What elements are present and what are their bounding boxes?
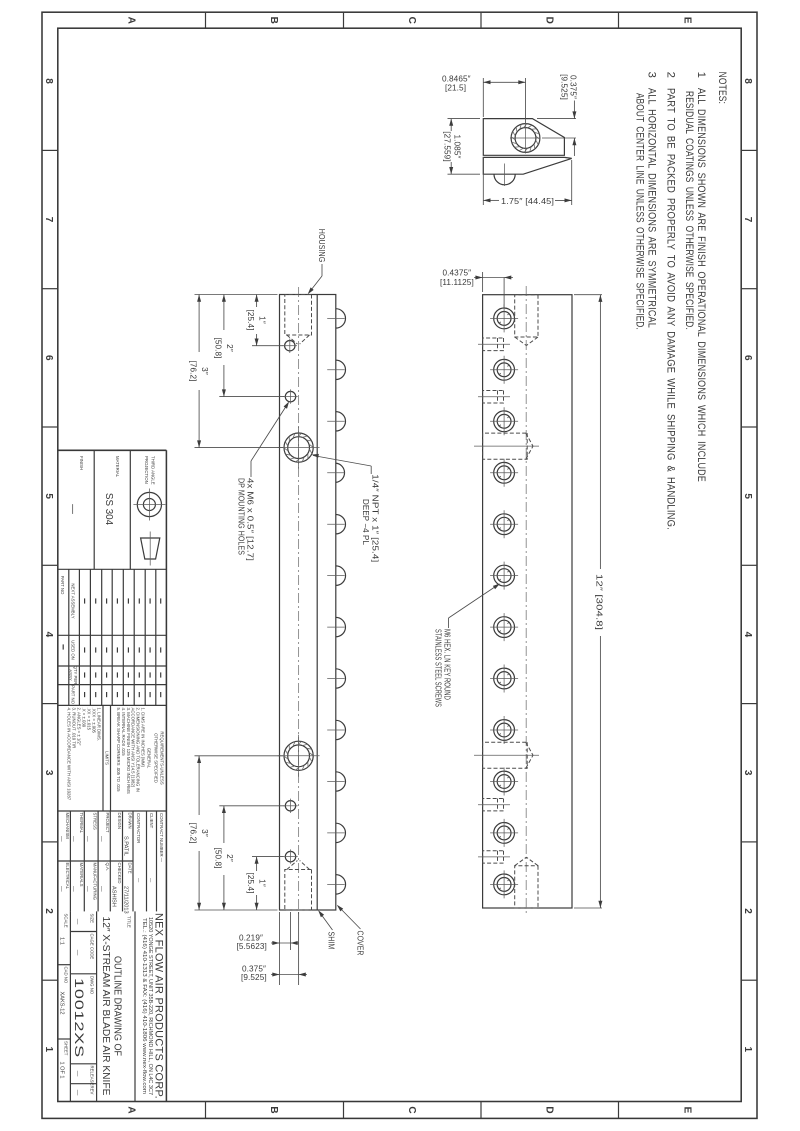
svg-text:SCALE: SCALE	[64, 914, 69, 928]
svg-text:E: E	[682, 17, 693, 24]
svg-text:2: 2	[742, 908, 753, 914]
svg-text:0.4375″: 0.4375″	[443, 269, 472, 278]
svg-text:DRAWN: DRAWN	[128, 813, 133, 829]
svg-text:Q.A.: Q.A.	[105, 863, 110, 872]
svg-text:HOUSING: HOUSING	[317, 229, 326, 262]
svg-text:ASHISH: ASHISH	[110, 886, 116, 907]
svg-text:REQUIREMENTS-UNLESS: REQUIREMENTS-UNLESS	[160, 731, 165, 784]
svg-text:PART NO: PART NO	[71, 685, 76, 704]
svg-text:12″ [304.8]: 12″ [304.8]	[595, 574, 604, 630]
svg-text:2″: 2″	[225, 344, 234, 352]
svg-text:REV: REV	[90, 1086, 95, 1095]
svg-text:M6 HEX. LN KEY ROUND: M6 HEX. LN KEY ROUND	[443, 629, 452, 700]
svg-text:8: 8	[43, 78, 54, 84]
svg-text:[50.8]: [50.8]	[214, 337, 223, 358]
svg-text:PART NO: PART NO	[60, 576, 65, 595]
svg-text:1 OF 1: 1 OF 1	[59, 1061, 65, 1078]
svg-text:THERMAL: THERMAL	[79, 813, 84, 834]
svg-text:MANUFACTURING: MANUFACTURING	[93, 863, 98, 901]
svg-text:—: —	[149, 878, 154, 883]
svg-text:D: D	[544, 17, 555, 24]
svg-text:[76.2]: [76.2]	[189, 822, 198, 843]
svg-text:C: C	[406, 17, 417, 24]
svg-text:SIZE: SIZE	[90, 914, 95, 924]
svg-text:DP MOUNTING HOLES: DP MOUNTING HOLES	[237, 478, 246, 555]
svg-text:MATERIAL: MATERIAL	[115, 456, 120, 478]
svg-text:NOTES:: NOTES:	[716, 72, 728, 105]
svg-text:E: E	[682, 1107, 693, 1114]
svg-text:—: —	[84, 886, 90, 892]
svg-text:—: —	[67, 504, 78, 514]
svg-text:[21.5]: [21.5]	[445, 84, 466, 93]
svg-text:DWG NO: DWG NO	[90, 976, 95, 995]
svg-text:S.PATIL: S.PATIL	[123, 836, 129, 856]
svg-text:B: B	[268, 17, 279, 24]
svg-text:—: —	[74, 1071, 80, 1077]
svg-text:RESIDUAL COATINGS UNLESS OTHER: RESIDUAL COATINGS UNLESS OTHERWISE SPECI…	[683, 91, 695, 330]
svg-text:C: C	[406, 1106, 417, 1113]
svg-text:—: —	[58, 886, 64, 892]
svg-text:CHECKED: CHECKED	[117, 863, 122, 884]
svg-text:MATERIALS: MATERIALS	[79, 863, 84, 887]
svg-text:MECHANISM: MECHANISM	[65, 813, 70, 840]
svg-text:[5.5623]: [5.5623]	[237, 942, 267, 951]
svg-text:5: 5	[43, 493, 54, 499]
svg-text:12″ X-STREAM AIR BLADE AIR KNI: 12″ X-STREAM AIR BLADE AIR KNIFE	[100, 917, 111, 1096]
svg-text:3: 3	[742, 770, 753, 776]
svg-text:1.085″: 1.085″	[453, 135, 462, 159]
svg-text:3″: 3″	[200, 829, 209, 837]
svg-text:DESIGN: DESIGN	[117, 813, 122, 829]
svg-text:[9.525]: [9.525]	[241, 973, 267, 982]
svg-text:PROJECTION: PROJECTION	[144, 456, 149, 484]
svg-text:2: 2	[665, 72, 677, 79]
svg-text:LIMITS: LIMITS	[105, 751, 110, 765]
svg-text:1.75″ [44.45]: 1.75″ [44.45]	[501, 197, 554, 206]
svg-text:SHIM: SHIM	[327, 932, 336, 950]
svg-text:DATE: DATE	[128, 863, 133, 874]
svg-text:1/4″ NPT x 1″ [25.4]: 1/4″ NPT x 1″ [25.4]	[371, 474, 380, 562]
svg-text:CAGE CODE: CAGE CODE	[90, 934, 95, 960]
svg-text:NEXT ASSEMBLY: NEXT ASSEMBLY	[71, 583, 76, 618]
svg-text:4: 4	[742, 632, 753, 638]
svg-text:[9.525]: [9.525]	[560, 74, 569, 100]
svg-text:TEL.: (416) 410-1313 & FAX: (4: TEL.: (416) 410-1313 & FAX: (416) 410-18…	[141, 918, 147, 1094]
svg-text:5: 5	[742, 493, 753, 499]
svg-text:ALL HORIZONTAL DIMENSIONS ARE: ALL HORIZONTAL DIMENSIONS ARE SYMMETRICA…	[646, 88, 658, 328]
svg-text:STRESS: STRESS	[93, 813, 98, 830]
svg-text:2″: 2″	[225, 854, 234, 862]
svg-text:ALL DIMENSIONS SHOWN ARE FINIS: ALL DIMENSIONS SHOWN ARE FINISH OPERATIO…	[695, 88, 707, 482]
svg-text:7: 7	[742, 217, 753, 223]
svg-text:GENERAL: GENERAL	[147, 748, 152, 769]
svg-text:8: 8	[742, 78, 753, 84]
svg-text:NEX FLOW AIR PRODUCTS CORP.: NEX FLOW AIR PRODUCTS CORP.	[153, 913, 165, 1099]
svg-text:1: 1	[742, 1047, 753, 1053]
svg-text:3: 3	[646, 72, 658, 79]
svg-text:SHEET: SHEET	[64, 1041, 69, 1056]
svg-text:4x M6 x 0.5″ [12.7]: 4x M6 x 0.5″ [12.7]	[246, 478, 255, 561]
svg-text:XAKS-12: XAKS-12	[59, 991, 65, 1014]
svg-text:1: 1	[695, 72, 707, 79]
svg-text:—: —	[74, 1090, 80, 1096]
svg-text:SS 304: SS 304	[103, 493, 114, 526]
svg-text:DEEP −4 PL: DEEP −4 PL	[361, 499, 370, 545]
svg-text:10012XS: 10012XS	[72, 978, 84, 1058]
svg-text:ELECTRICAL: ELECTRICAL	[65, 863, 70, 890]
svg-text:ASSY: ASSY	[68, 669, 73, 681]
svg-text:—: —	[70, 836, 76, 842]
svg-text:—: —	[74, 950, 80, 956]
svg-text:1″: 1″	[258, 879, 267, 887]
svg-text:PART TO BE PACKED PROPERLY TO: PART TO BE PACKED PROPERLY TO AVOID ANY …	[665, 88, 677, 530]
svg-text:5. BREAK SHARP CORNERS .005 TO: 5. BREAK SHARP CORNERS .005 TO .015	[116, 708, 121, 793]
svg-text:[25.4]: [25.4]	[246, 309, 255, 330]
svg-text:TITLE: TITLE	[127, 916, 132, 928]
svg-text:ABOUT CENTER LINE UNLESS OTHER: ABOUT CENTER LINE UNLESS OTHERWISE SPECI…	[634, 93, 646, 330]
svg-text:COVER: COVER	[356, 931, 365, 956]
svg-text:B: B	[268, 1106, 279, 1113]
svg-text:6: 6	[43, 355, 54, 361]
svg-text:CONTRACT NUMBER —: CONTRACT NUMBER —	[159, 813, 164, 863]
svg-text:0.375″: 0.375″	[569, 75, 578, 99]
svg-text:—: —	[136, 878, 141, 883]
svg-text:3″: 3″	[200, 367, 209, 375]
svg-text:RELEASE: RELEASE	[90, 1066, 95, 1086]
svg-text:[27.559]: [27.559]	[443, 131, 452, 161]
svg-text:—: —	[98, 886, 104, 892]
svg-text:FINISH: FINISH	[79, 456, 84, 470]
svg-text:—: —	[84, 836, 90, 842]
svg-text:[11.1125]: [11.1125]	[440, 278, 474, 287]
svg-text:3: 3	[43, 770, 54, 776]
svg-text:0.8465″: 0.8465″	[442, 75, 471, 84]
svg-text:1: 1	[43, 1047, 54, 1053]
svg-text:—: —	[74, 919, 80, 925]
svg-text:D: D	[544, 1106, 555, 1113]
svg-text:[76.2]: [76.2]	[189, 360, 198, 381]
svg-text:—: —	[70, 886, 76, 892]
svg-text:USED ON: USED ON	[71, 640, 76, 660]
svg-text:[50.8]: [50.8]	[214, 847, 223, 868]
svg-text:THIRD ANGLE: THIRD ANGLE	[151, 456, 156, 485]
svg-text:1:1: 1:1	[59, 937, 65, 945]
svg-text:CLIENT: CLIENT	[149, 813, 154, 829]
svg-text:OUTLINE DRAWING OF: OUTLINE DRAWING OF	[112, 956, 123, 1056]
svg-text:27/11/2013: 27/11/2013	[123, 886, 129, 914]
svg-text:A: A	[126, 1106, 137, 1113]
svg-text:CONTRACTOR: CONTRACTOR	[136, 813, 141, 843]
svg-text:7: 7	[43, 217, 54, 223]
svg-text:OTHERWISE SPECIFIED: OTHERWISE SPECIFIED	[154, 733, 159, 783]
svg-text:6: 6	[742, 355, 753, 361]
svg-text:4: 4	[43, 632, 54, 638]
svg-text:PROJECT: PROJECT	[105, 813, 110, 833]
svg-text:A: A	[126, 17, 137, 24]
svg-text:2: 2	[43, 908, 54, 914]
svg-text:—: —	[58, 836, 64, 842]
svg-text:STAINLESS STEEL SCREWS: STAINLESS STEEL SCREWS	[434, 629, 443, 707]
svg-text:[25.4]: [25.4]	[246, 872, 255, 893]
svg-text:—: —	[98, 836, 104, 842]
svg-text:CAD NO: CAD NO	[64, 967, 69, 984]
svg-text:4. HOLES IN ACCORDANCE WITH AN: 4. HOLES IN ACCORDANCE WITH ANSI 10287	[67, 708, 72, 801]
svg-text:1″: 1″	[258, 316, 267, 324]
